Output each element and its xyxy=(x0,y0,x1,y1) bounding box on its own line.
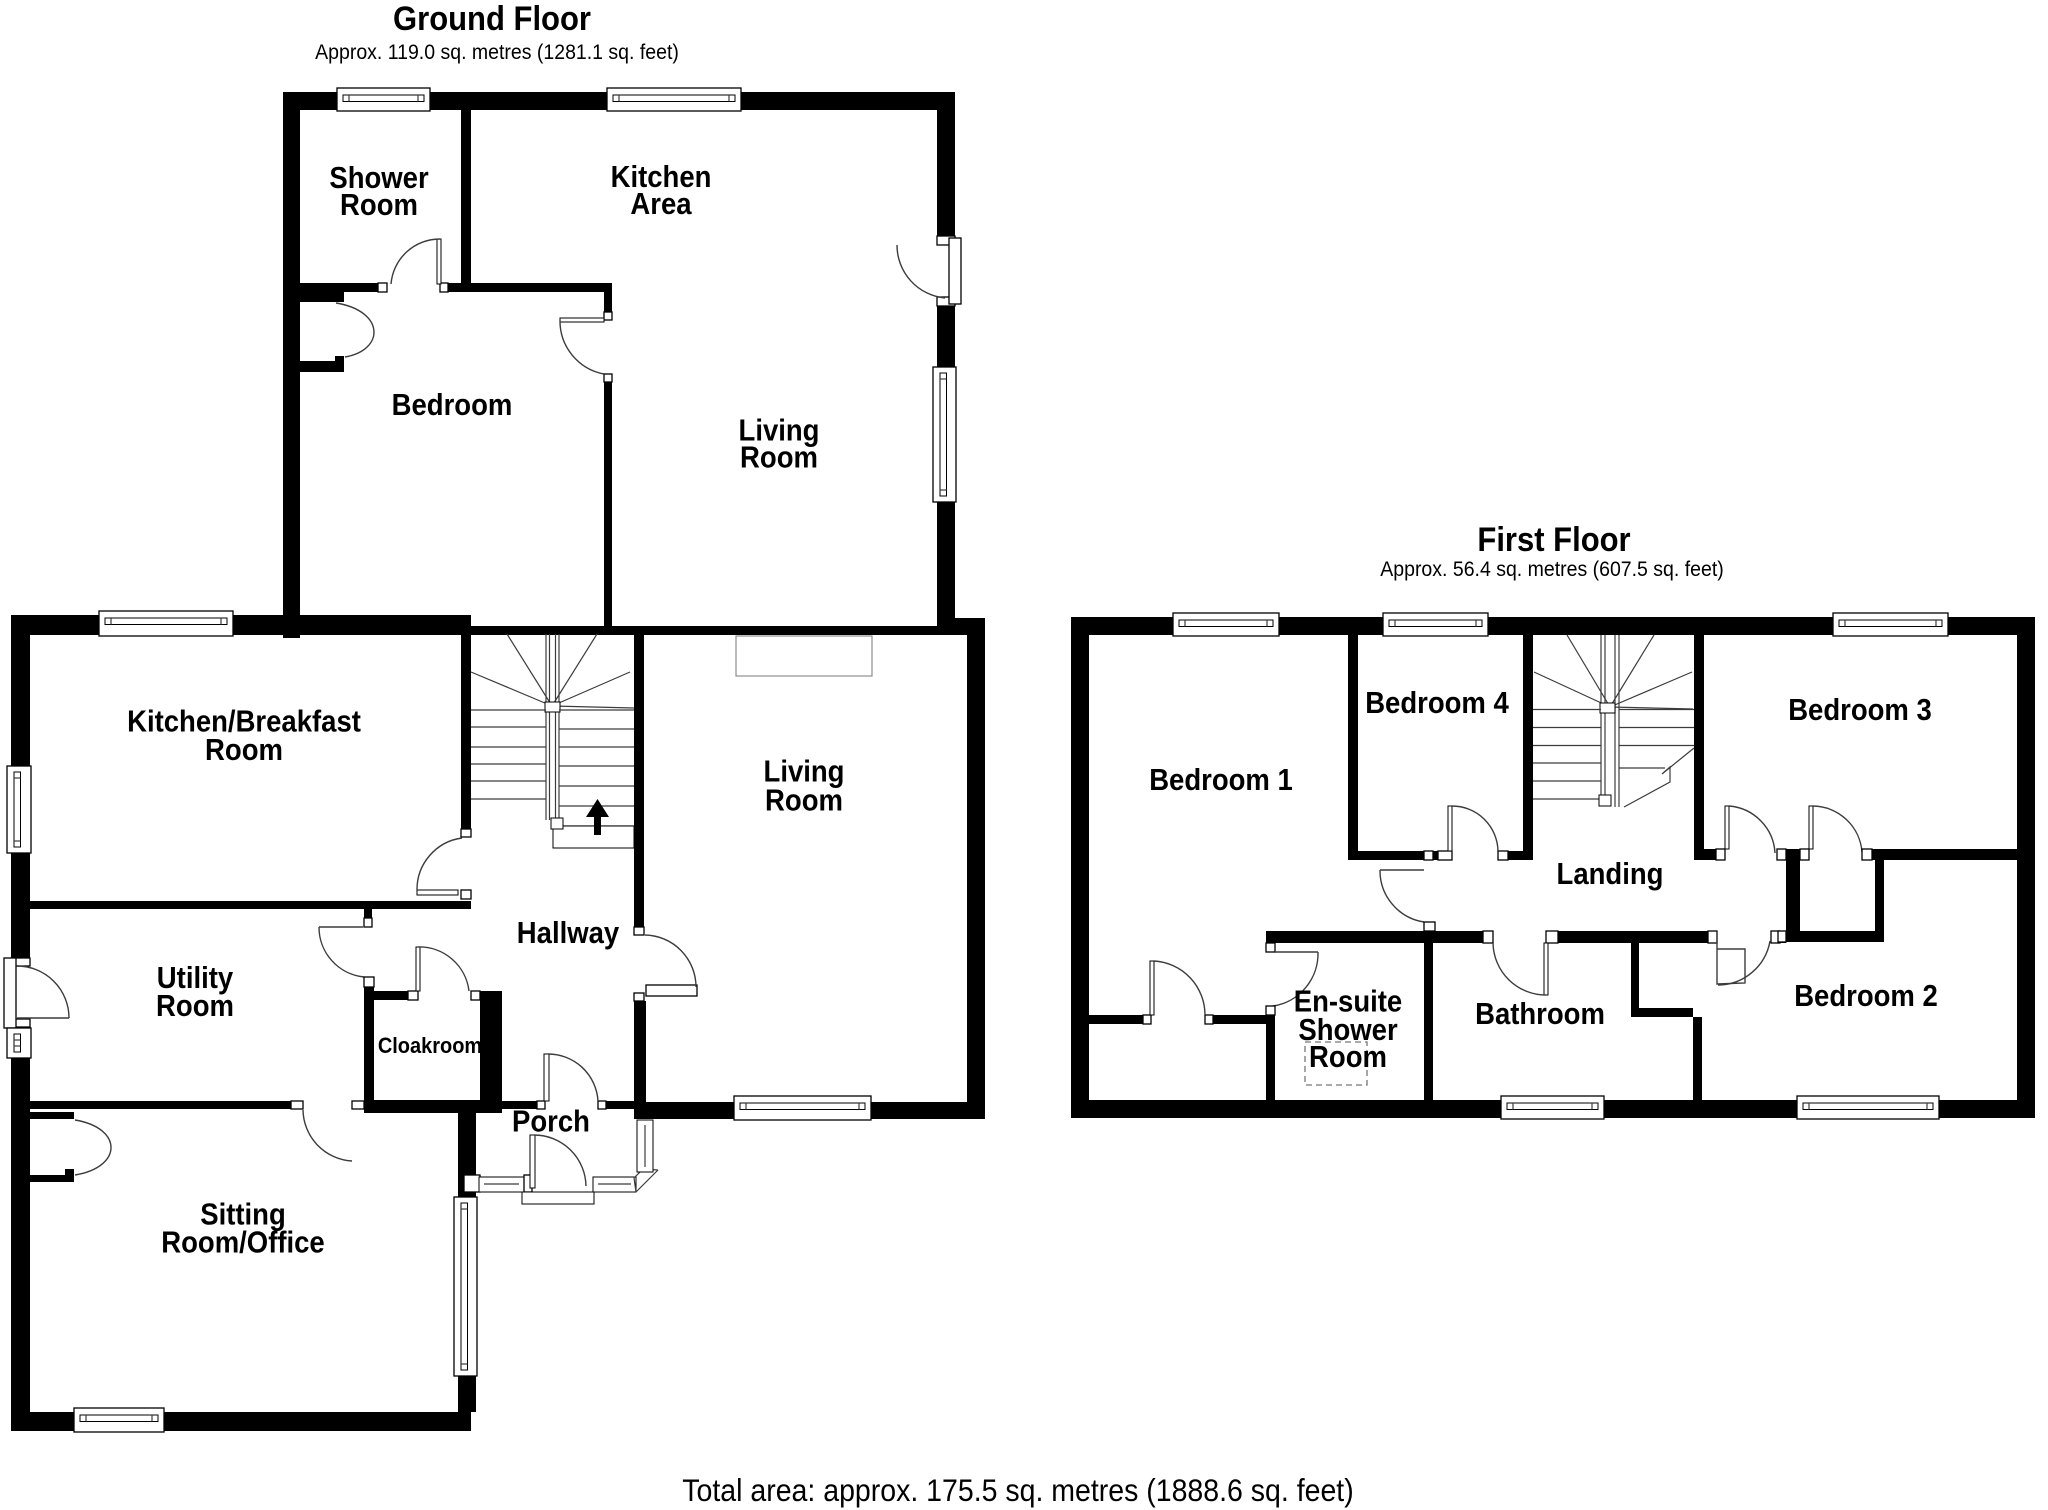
svg-text:Porch: Porch xyxy=(512,1105,590,1139)
svg-text:Total area: approx. 175.5 sq.: Total area: approx. 175.5 sq. metres (18… xyxy=(682,1474,1353,1509)
svg-text:Room: Room xyxy=(1309,1041,1387,1075)
svg-text:Room: Room xyxy=(340,189,418,223)
svg-text:Cloakroom: Cloakroom xyxy=(378,1034,482,1058)
svg-text:Room: Room xyxy=(765,784,843,818)
svg-text:Approx. 56.4 sq. metres (607.5: Approx. 56.4 sq. metres (607.5 sq. feet) xyxy=(1380,557,1723,581)
svg-text:Bathroom: Bathroom xyxy=(1475,998,1605,1032)
svg-text:Bedroom 1: Bedroom 1 xyxy=(1149,764,1293,798)
svg-text:Room: Room xyxy=(156,990,234,1024)
svg-text:Landing: Landing xyxy=(1557,858,1664,892)
svg-text:First Floor: First Floor xyxy=(1477,519,1630,558)
svg-text:Room/Office: Room/Office xyxy=(161,1226,324,1260)
svg-text:Bedroom 4: Bedroom 4 xyxy=(1365,687,1509,721)
svg-text:Room: Room xyxy=(740,441,818,475)
svg-text:Bedroom: Bedroom xyxy=(392,389,513,423)
svg-text:Bedroom 2: Bedroom 2 xyxy=(1794,980,1938,1014)
svg-text:Hallway: Hallway xyxy=(517,917,619,951)
svg-text:Approx. 119.0 sq. metres (1281: Approx. 119.0 sq. metres (1281.1 sq. fee… xyxy=(315,40,679,64)
svg-text:Ground Floor: Ground Floor xyxy=(393,0,591,37)
svg-text:Area: Area xyxy=(630,188,692,222)
svg-text:Bedroom 3: Bedroom 3 xyxy=(1788,694,1932,728)
svg-text:Room: Room xyxy=(205,734,283,768)
